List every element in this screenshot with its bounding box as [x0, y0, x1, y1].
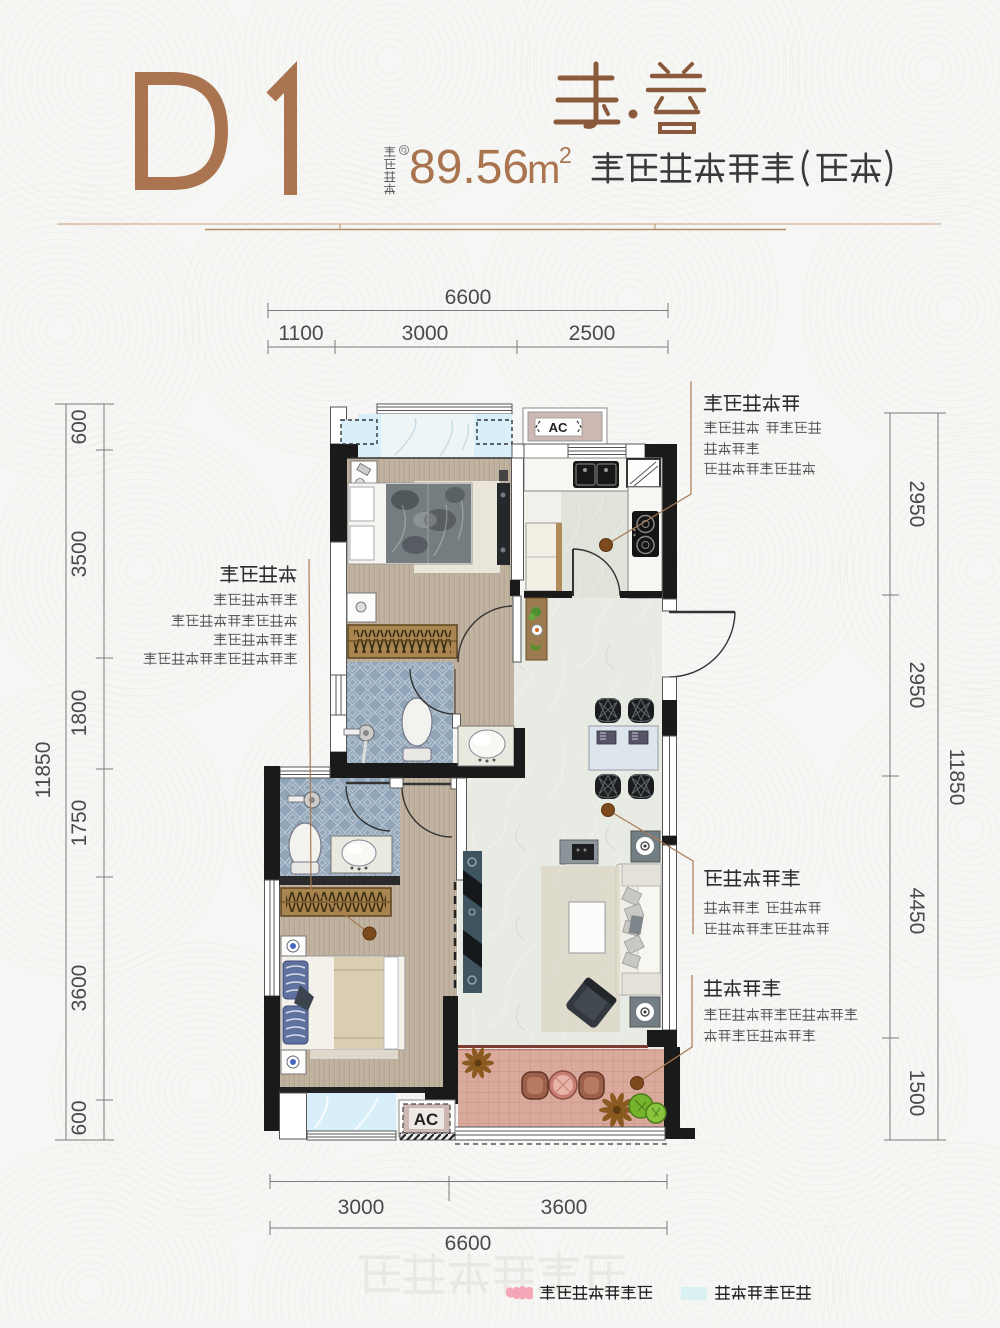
svg-text:2950: 2950: [905, 662, 928, 709]
svg-text:4450: 4450: [905, 888, 928, 935]
svg-text:600: 600: [68, 1100, 91, 1135]
svg-text:3000: 3000: [402, 322, 449, 345]
svg-text:2950: 2950: [905, 481, 928, 528]
svg-text:600: 600: [68, 409, 91, 444]
svg-text:3600: 3600: [541, 1196, 588, 1219]
svg-text:6600: 6600: [445, 1232, 492, 1255]
svg-text:1750: 1750: [68, 800, 91, 847]
svg-text:3600: 3600: [68, 965, 91, 1012]
svg-text:1100: 1100: [278, 322, 323, 345]
svg-text:3000: 3000: [338, 1196, 385, 1219]
svg-text:3500: 3500: [68, 531, 91, 578]
svg-text:2500: 2500: [569, 322, 616, 345]
svg-text:AC: AC: [549, 420, 568, 435]
svg-text:89.56: 89.56: [409, 141, 529, 194]
svg-text:AC: AC: [414, 1110, 439, 1129]
svg-text:m: m: [527, 148, 560, 192]
svg-text:2: 2: [559, 142, 572, 168]
svg-text:11850: 11850: [32, 742, 55, 799]
svg-text:11850: 11850: [945, 749, 968, 806]
svg-text:6600: 6600: [445, 286, 492, 309]
svg-text:1800: 1800: [68, 690, 91, 737]
svg-text:1500: 1500: [905, 1070, 928, 1117]
